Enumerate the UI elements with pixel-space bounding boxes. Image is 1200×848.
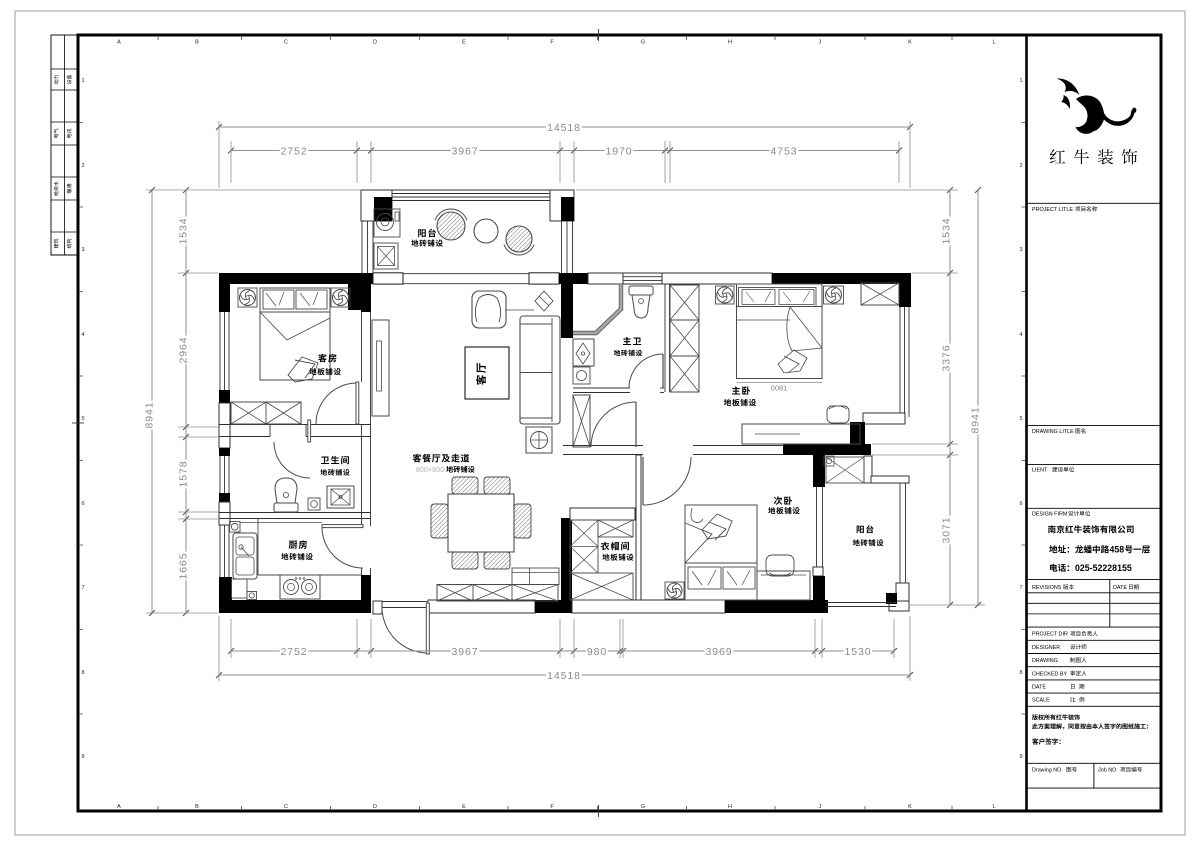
svg-text:5: 5 <box>1019 416 1022 422</box>
svg-text:14518: 14518 <box>547 670 581 682</box>
svg-text:4: 4 <box>1019 332 1022 338</box>
svg-text:E: E <box>462 804 466 810</box>
svg-text:2: 2 <box>1019 163 1022 169</box>
svg-text:DATE: DATE <box>1032 685 1046 691</box>
svg-text:9: 9 <box>1019 754 1022 760</box>
svg-text:1970: 1970 <box>606 146 633 158</box>
svg-text:1578: 1578 <box>178 461 190 488</box>
svg-text:LIENT: LIENT <box>1032 468 1048 474</box>
svg-text:1665: 1665 <box>178 553 190 580</box>
svg-text:K: K <box>908 40 912 46</box>
svg-text:D: D <box>373 40 377 46</box>
svg-text:E: E <box>462 40 466 46</box>
svg-text:DATE: DATE <box>1113 585 1127 591</box>
svg-text:B: B <box>195 804 199 810</box>
svg-text:3967: 3967 <box>452 146 479 158</box>
svg-text:1530: 1530 <box>845 646 872 658</box>
svg-text:H: H <box>728 804 732 810</box>
svg-text:3376: 3376 <box>941 345 953 372</box>
svg-text:A: A <box>117 804 121 810</box>
svg-text:7: 7 <box>1019 585 1022 591</box>
svg-text:SCALE: SCALE <box>1032 698 1050 704</box>
svg-text:C: C <box>284 804 288 810</box>
svg-text:2752: 2752 <box>281 146 308 158</box>
svg-text:G: G <box>641 804 645 810</box>
svg-text:REVISIONS: REVISIONS <box>1032 585 1062 591</box>
svg-text:1: 1 <box>1019 78 1022 84</box>
svg-text:3: 3 <box>1019 247 1022 253</box>
svg-text:3: 3 <box>81 247 84 253</box>
svg-text:458: 458 <box>1110 545 1125 555</box>
svg-text:DRAWING: DRAWING <box>1032 658 1058 664</box>
svg-text:8941: 8941 <box>970 407 982 434</box>
svg-text:PROJECT LITLE: PROJECT LITLE <box>1032 207 1073 213</box>
svg-text:Drawing NO: Drawing NO <box>1032 768 1061 774</box>
svg-text:980: 980 <box>587 646 607 658</box>
svg-text:2752: 2752 <box>281 646 308 658</box>
svg-text:L: L <box>992 804 995 810</box>
svg-text:1534: 1534 <box>941 218 953 245</box>
svg-text:8941: 8941 <box>144 402 156 429</box>
svg-text:1: 1 <box>81 78 84 84</box>
svg-text:0081: 0081 <box>771 384 788 393</box>
svg-text:CHECKED BY: CHECKED BY <box>1032 671 1067 677</box>
svg-text:C: C <box>284 40 288 46</box>
svg-text:L: L <box>992 40 995 46</box>
svg-text:4: 4 <box>81 332 84 338</box>
svg-text:1534: 1534 <box>178 218 190 245</box>
svg-text:6: 6 <box>81 501 84 507</box>
svg-text:3071: 3071 <box>941 517 953 544</box>
svg-text:DESIGN FIRM: DESIGN FIRM <box>1032 512 1068 518</box>
svg-text:B: B <box>195 40 199 46</box>
svg-text:J: J <box>819 40 822 46</box>
svg-text:DRAWING LITLE: DRAWING LITLE <box>1032 429 1074 435</box>
svg-text:Job NO: Job NO <box>1098 768 1116 774</box>
svg-text:DESIGNER: DESIGNER <box>1032 645 1060 651</box>
svg-text:7: 7 <box>81 585 84 591</box>
svg-text:A: A <box>117 40 121 46</box>
svg-text:8: 8 <box>1019 670 1022 676</box>
svg-text:D: D <box>373 804 377 810</box>
svg-text:025-52228155: 025-52228155 <box>1075 563 1132 573</box>
svg-text:5: 5 <box>81 416 84 422</box>
svg-text:3967: 3967 <box>452 646 479 658</box>
svg-text:2964: 2964 <box>178 337 190 364</box>
svg-text:PROJECT DIR: PROJECT DIR <box>1032 632 1068 638</box>
svg-text:14518: 14518 <box>547 122 581 134</box>
svg-text:4753: 4753 <box>771 146 798 158</box>
svg-text:G: G <box>641 40 645 46</box>
svg-text:8: 8 <box>81 670 84 676</box>
svg-text:9: 9 <box>81 754 84 760</box>
svg-text:2: 2 <box>81 163 84 169</box>
svg-text:J: J <box>819 804 822 810</box>
svg-text:3969: 3969 <box>706 646 733 658</box>
svg-text:800×800: 800×800 <box>416 465 444 474</box>
svg-text:K: K <box>908 804 912 810</box>
svg-text:H: H <box>728 40 732 46</box>
svg-text:6: 6 <box>1019 501 1022 507</box>
